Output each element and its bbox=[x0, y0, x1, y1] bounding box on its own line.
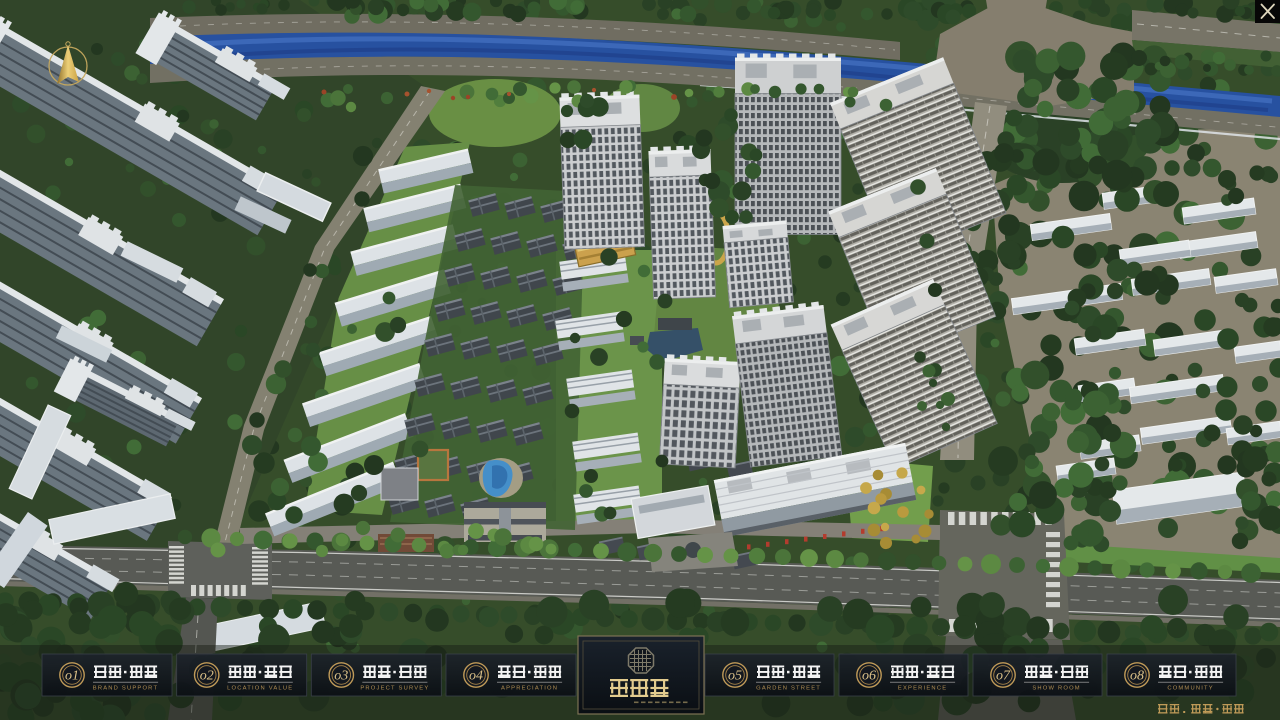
svg-text:COMMUNITY: COMMUNITY bbox=[1167, 686, 1214, 692]
svg-text:o3: o3 bbox=[334, 669, 348, 684]
svg-text:o7: o7 bbox=[996, 669, 1011, 684]
svg-text:o2: o2 bbox=[200, 669, 214, 684]
svg-text:o8: o8 bbox=[1130, 669, 1144, 684]
svg-text:o6: o6 bbox=[862, 669, 876, 684]
svg-text:o5: o5 bbox=[728, 669, 742, 684]
svg-text:APPRECIATION: APPRECIATION bbox=[501, 686, 558, 692]
svg-text:BRAND SUPPORT: BRAND SUPPORT bbox=[93, 686, 158, 692]
svg-text:LOCATION VALUE: LOCATION VALUE bbox=[227, 686, 293, 692]
svg-text:PROJECT SURVEY: PROJECT SURVEY bbox=[360, 686, 429, 692]
svg-text:o1: o1 bbox=[65, 669, 79, 684]
svg-text:o4: o4 bbox=[469, 669, 483, 684]
svg-text:EXPERIENCE: EXPERIENCE bbox=[898, 686, 947, 692]
svg-text:GARDEN STREET: GARDEN STREET bbox=[756, 686, 821, 692]
svg-text:SHOW ROOM: SHOW ROOM bbox=[1032, 686, 1080, 692]
